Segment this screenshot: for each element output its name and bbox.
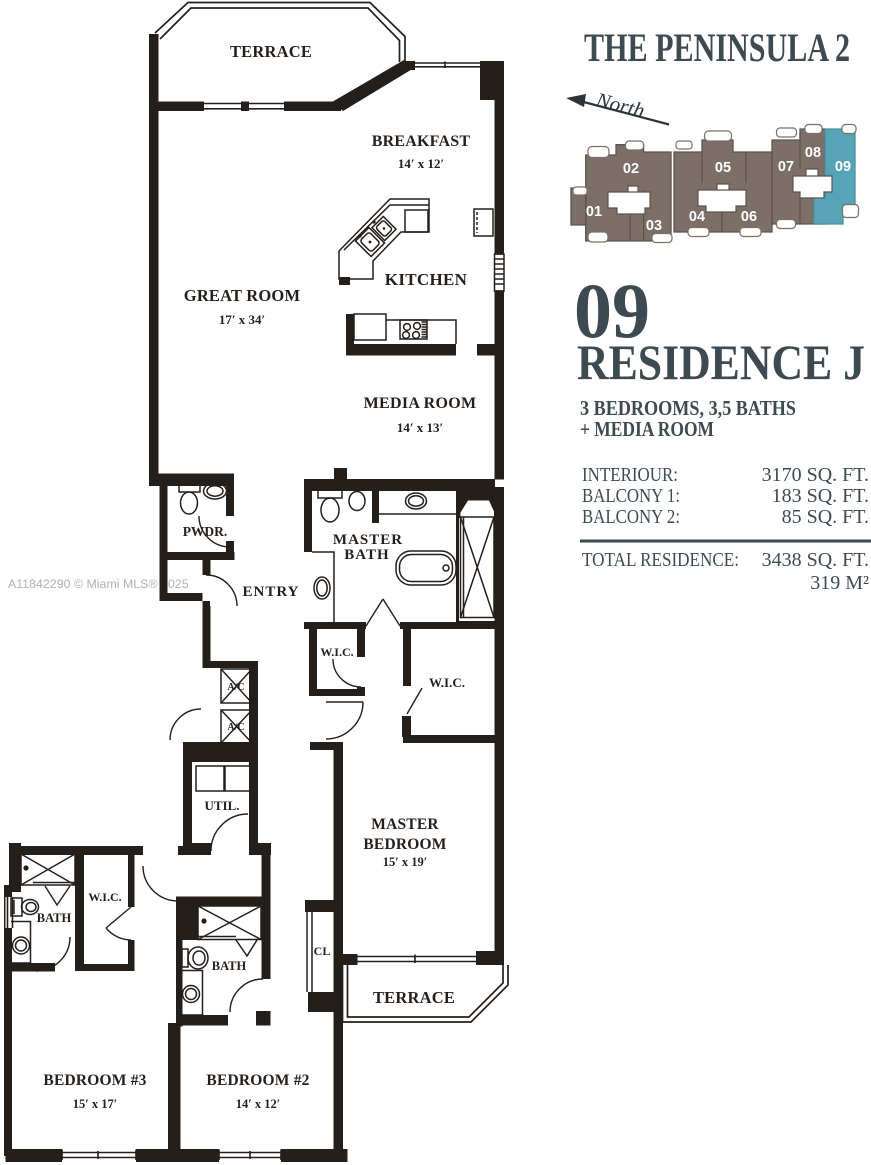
svg-text:01: 01 — [586, 204, 602, 220]
svg-text:BEDROOM #2: BEDROOM #2 — [206, 1072, 309, 1089]
svg-text:KITCHEN: KITCHEN — [385, 270, 468, 289]
svg-text:BATH: BATH — [212, 959, 247, 973]
svg-text:TERRACE: TERRACE — [230, 42, 312, 61]
svg-text:319 M²: 319 M² — [810, 572, 869, 594]
svg-text:15′ x 17′: 15′ x 17′ — [73, 1097, 118, 1111]
svg-text:TOTAL RESIDENCE:: TOTAL RESIDENCE: — [582, 549, 739, 571]
svg-text:A/C: A/C — [227, 722, 244, 733]
svg-text:UTIL.: UTIL. — [204, 798, 239, 813]
svg-text:ENTRY: ENTRY — [243, 584, 300, 600]
svg-text:TERRACE: TERRACE — [373, 988, 455, 1007]
svg-text:05: 05 — [715, 160, 731, 176]
svg-text:14′ x 12′: 14′ x 12′ — [236, 1097, 281, 1111]
svg-text:04: 04 — [689, 209, 705, 225]
svg-text:02: 02 — [623, 161, 639, 177]
svg-text:GREAT ROOM: GREAT ROOM — [184, 286, 301, 305]
svg-text:BATH: BATH — [37, 911, 72, 925]
svg-text:14′ x 13′: 14′ x 13′ — [397, 420, 443, 435]
svg-text:183 SQ. FT.: 183 SQ. FT. — [772, 485, 869, 507]
svg-text:BALCONY 2:: BALCONY 2: — [582, 506, 680, 528]
svg-text:BEDROOM: BEDROOM — [363, 836, 446, 853]
svg-text:06: 06 — [741, 209, 757, 225]
svg-text:CL: CL — [314, 944, 331, 958]
svg-text:+ MEDIA ROOM: + MEDIA ROOM — [580, 417, 714, 441]
svg-text:17′ x 34′: 17′ x 34′ — [219, 312, 265, 327]
svg-text:PWDR.: PWDR. — [183, 524, 228, 539]
svg-text:THE PENINSULA 2: THE PENINSULA 2 — [584, 25, 850, 70]
svg-text:07: 07 — [778, 159, 794, 175]
svg-text:09: 09 — [835, 159, 851, 175]
svg-text:85 SQ. FT.: 85 SQ. FT. — [782, 506, 869, 528]
svg-text:INTERIOUR:: INTERIOUR: — [582, 464, 678, 486]
svg-text:BATH: BATH — [344, 547, 389, 563]
svg-text:BEDROOM #3: BEDROOM #3 — [43, 1072, 146, 1089]
svg-text:MASTER: MASTER — [333, 532, 403, 548]
svg-text:MASTER: MASTER — [371, 816, 439, 833]
svg-text:BREAKFAST: BREAKFAST — [372, 133, 471, 150]
svg-text:W.I.C.: W.I.C. — [88, 890, 121, 904]
svg-text:15′ x 19′: 15′ x 19′ — [383, 855, 428, 869]
svg-text:03: 03 — [646, 218, 662, 234]
svg-text:BALCONY 1:: BALCONY 1: — [582, 485, 680, 507]
svg-text:A/C: A/C — [227, 682, 244, 693]
svg-text:W.I.C.: W.I.C. — [320, 645, 353, 659]
svg-text:14′ x 12′: 14′ x 12′ — [398, 156, 444, 171]
svg-text:MEDIA ROOM: MEDIA ROOM — [364, 395, 477, 412]
svg-text:08: 08 — [805, 145, 821, 161]
svg-text:3438 SQ. FT.: 3438 SQ. FT. — [762, 549, 869, 571]
svg-text:W.I.C.: W.I.C. — [429, 675, 465, 690]
svg-text:RESIDENCE J: RESIDENCE J — [577, 334, 865, 390]
svg-text:3170 SQ. FT.: 3170 SQ. FT. — [762, 464, 869, 486]
